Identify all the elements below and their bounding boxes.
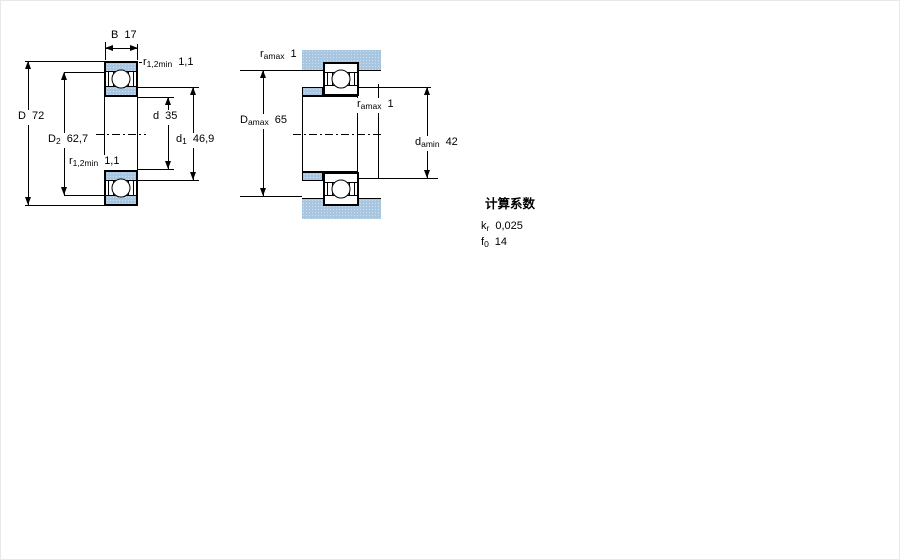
dim-label-b: B17 (110, 29, 138, 44)
d-outer-dim-line (28, 62, 29, 205)
d1-arrow-bottom (190, 172, 196, 180)
damin-ext-bottom (358, 178, 438, 179)
bearing-section-top (104, 61, 138, 97)
b-arrow-left (105, 45, 113, 51)
factor-f0: f014 (480, 236, 508, 251)
dim-label-ramax-mid: ramax1 (356, 98, 395, 113)
damin-arrow-top (424, 87, 430, 95)
d-bore-ext-bottom (138, 169, 174, 170)
d2-arrow-bottom (61, 187, 67, 195)
dim-label-ramax-top: ramax1 (259, 48, 298, 63)
dim-label-d2: D262,7 (47, 133, 89, 148)
right-centerline (293, 134, 384, 135)
dim-label-damin: damin42 (414, 136, 459, 151)
d-bore-dim-line (168, 98, 169, 169)
damax-arrow-top (260, 70, 266, 78)
ball (332, 70, 351, 89)
d2-ext-top (64, 72, 104, 73)
d-outer-arrow-bottom (25, 197, 31, 205)
damin-ext-top (358, 87, 431, 88)
d2-ext-bottom (64, 195, 104, 196)
bearing-dimension-drawing: B17 r1,2min1,1 D72 D262,7 d35 d146,9 r1,… (0, 0, 900, 560)
d2-arrow-top (61, 72, 67, 80)
calculation-factors-title: 计算系数 (484, 198, 536, 211)
d-bore-arrow-top (165, 97, 171, 105)
bearing-section-bottom (104, 170, 138, 206)
damax-arrow-bottom (260, 188, 266, 196)
d-outer-ext-bottom (25, 205, 104, 206)
dim-label-d-outer: D72 (17, 110, 45, 125)
damax-ext-bottom (240, 196, 302, 197)
ball (112, 179, 131, 198)
d1-ext-bottom (138, 180, 199, 181)
dim-label-r12min-bottom: r1,2min1,1 (68, 155, 120, 170)
d-bore-arrow-bottom (165, 161, 171, 169)
mounted-bearing-section-top (323, 62, 359, 96)
b-arrow-right (130, 45, 138, 51)
damin-dim-line (427, 88, 428, 178)
factor-kr: kr0,025 (480, 220, 524, 235)
d-outer-ext-top (25, 61, 104, 62)
mounted-bearing-section-bottom (323, 172, 359, 206)
d-outer-arrow-top (25, 61, 31, 69)
d1-arrow-top (190, 87, 196, 95)
left-centerline (96, 134, 146, 135)
dim-label-d-bore: d35 (152, 110, 178, 125)
damax-dim-line (263, 71, 264, 196)
ball (332, 180, 351, 199)
damin-arrow-bottom (424, 170, 430, 178)
ball (112, 70, 131, 89)
dim-label-d1: d146,9 (175, 133, 215, 148)
shaft-shoulder-bottom (302, 172, 323, 181)
dim-label-r12min-top: r1,2min1,1 (142, 56, 194, 71)
shaft-shoulder-top (302, 87, 323, 96)
dim-label-damax: Damax65 (239, 114, 288, 129)
